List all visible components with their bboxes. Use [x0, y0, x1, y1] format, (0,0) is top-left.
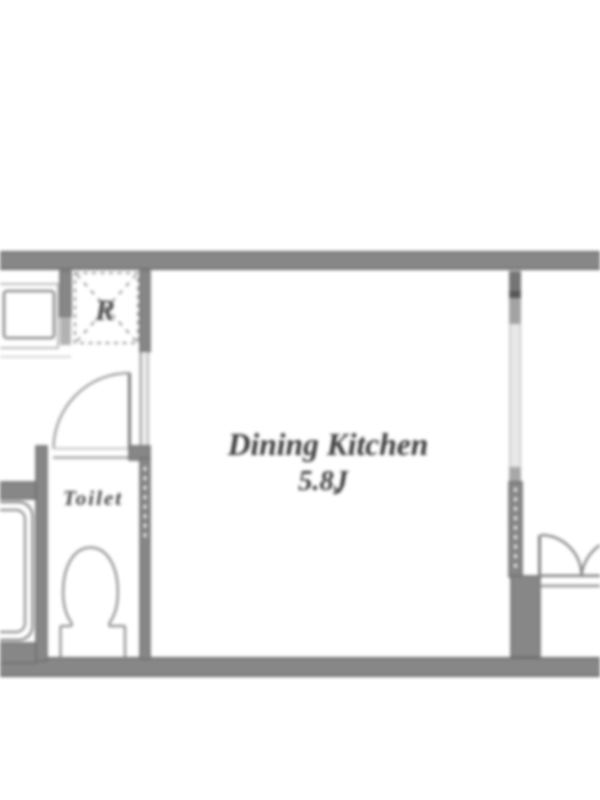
svg-text:Dining Kitchen: Dining Kitchen [227, 427, 428, 462]
svg-text:R: R [94, 294, 115, 327]
svg-text:Toilet: Toilet [63, 486, 123, 510]
svg-text:5.8J: 5.8J [298, 466, 349, 497]
